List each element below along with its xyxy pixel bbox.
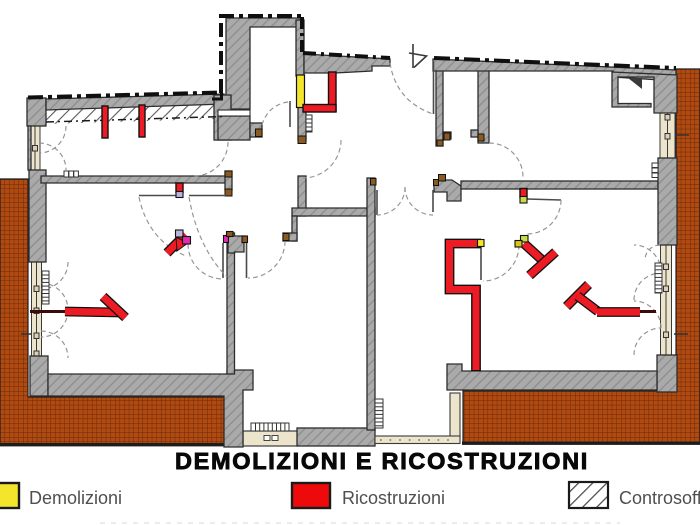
svg-text:Controsoffitti: Controsoffitti — [619, 488, 700, 508]
svg-text:DEMOLIZIONI E RICOSTRUZIONI: DEMOLIZIONI E RICOSTRUZIONI — [175, 448, 589, 474]
svg-text:Ricostruzioni: Ricostruzioni — [342, 488, 445, 508]
svg-text:Demolizioni: Demolizioni — [29, 488, 122, 508]
